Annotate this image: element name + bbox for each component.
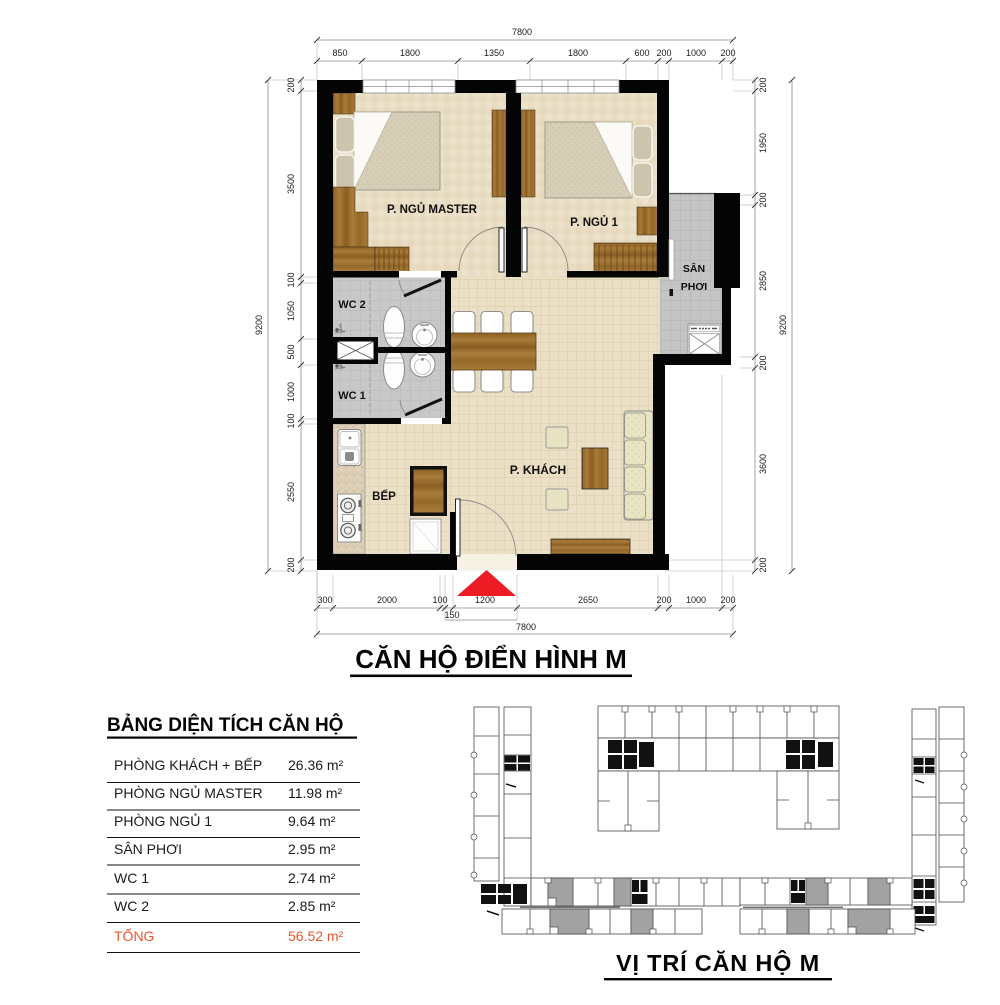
- svg-text:VỊ TRÍ CĂN HỘ M: VỊ TRÍ CĂN HỘ M: [616, 949, 820, 976]
- svg-text:P. KHÁCH: P. KHÁCH: [510, 462, 566, 477]
- svg-text:200: 200: [286, 557, 296, 572]
- svg-text:150: 150: [444, 610, 459, 620]
- svg-text:200: 200: [656, 48, 671, 58]
- svg-text:CĂN HỘ ĐIỂN HÌNH M: CĂN HỘ ĐIỂN HÌNH M: [355, 644, 627, 674]
- svg-text:9200: 9200: [254, 315, 264, 335]
- svg-text:100: 100: [286, 413, 296, 428]
- svg-text:WC 1: WC 1: [114, 870, 149, 886]
- svg-text:1000: 1000: [686, 595, 706, 605]
- svg-text:100: 100: [286, 272, 296, 287]
- svg-text:100: 100: [432, 595, 447, 605]
- svg-text:7800: 7800: [512, 27, 532, 37]
- svg-text:PHÒNG NGỦ 1: PHÒNG NGỦ 1: [114, 812, 212, 829]
- svg-text:2.95 m²: 2.95 m²: [288, 841, 336, 857]
- svg-text:26.36 m²: 26.36 m²: [288, 757, 344, 773]
- svg-text:600: 600: [634, 48, 649, 58]
- svg-text:1000: 1000: [286, 382, 296, 402]
- svg-text:2.85 m²: 2.85 m²: [288, 898, 336, 914]
- svg-text:PHƠI: PHƠI: [681, 281, 708, 293]
- svg-text:2650: 2650: [578, 595, 598, 605]
- svg-text:2000: 2000: [377, 595, 397, 605]
- svg-text:BẢNG DIỆN TÍCH CĂN HỘ: BẢNG DIỆN TÍCH CĂN HỘ: [107, 714, 343, 736]
- svg-text:P. NGỦ 1: P. NGỦ 1: [570, 216, 618, 229]
- svg-text:1200: 1200: [475, 595, 495, 605]
- svg-text:200: 200: [758, 77, 768, 92]
- svg-text:7800: 7800: [516, 622, 536, 632]
- svg-text:3600: 3600: [758, 454, 768, 474]
- svg-text:200: 200: [286, 77, 296, 92]
- svg-text:56.52 m²: 56.52 m²: [288, 928, 344, 944]
- svg-text:PHÒNG KHÁCH + BẾP: PHÒNG KHÁCH + BẾP: [114, 757, 262, 773]
- svg-text:2850: 2850: [758, 271, 768, 291]
- svg-text:P. NGỦ MASTER: P. NGỦ MASTER: [387, 203, 478, 216]
- svg-text:WC 2: WC 2: [338, 299, 366, 311]
- svg-text:1800: 1800: [400, 48, 420, 58]
- svg-text:SÂN PHƠI: SÂN PHƠI: [114, 841, 182, 857]
- svg-text:1950: 1950: [758, 133, 768, 153]
- svg-text:1050: 1050: [286, 301, 296, 321]
- svg-text:300: 300: [317, 595, 332, 605]
- svg-text:200: 200: [656, 595, 671, 605]
- svg-text:WC 2: WC 2: [114, 898, 149, 914]
- svg-text:2550: 2550: [286, 482, 296, 502]
- svg-text:PHÒNG NGỦ MASTER: PHÒNG NGỦ MASTER: [114, 784, 263, 801]
- svg-text:WC 1: WC 1: [338, 390, 366, 402]
- svg-text:TỔNG: TỔNG: [114, 927, 154, 944]
- svg-text:200: 200: [758, 557, 768, 572]
- svg-text:1350: 1350: [484, 48, 504, 58]
- svg-text:200: 200: [720, 48, 735, 58]
- svg-text:9.64 m²: 9.64 m²: [288, 813, 336, 829]
- svg-text:2.74 m²: 2.74 m²: [288, 870, 336, 886]
- svg-text:3500: 3500: [286, 174, 296, 194]
- svg-text:1800: 1800: [568, 48, 588, 58]
- svg-text:200: 200: [720, 595, 735, 605]
- svg-text:BẾP: BẾP: [372, 490, 396, 503]
- svg-text:9200: 9200: [778, 315, 788, 335]
- svg-text:1000: 1000: [686, 48, 706, 58]
- svg-text:11.98 m²: 11.98 m²: [288, 785, 343, 801]
- svg-text:850: 850: [332, 48, 347, 58]
- svg-text:200: 200: [758, 355, 768, 370]
- svg-text:500: 500: [286, 344, 296, 359]
- svg-text:200: 200: [758, 192, 768, 207]
- svg-text:SÂN: SÂN: [683, 262, 705, 275]
